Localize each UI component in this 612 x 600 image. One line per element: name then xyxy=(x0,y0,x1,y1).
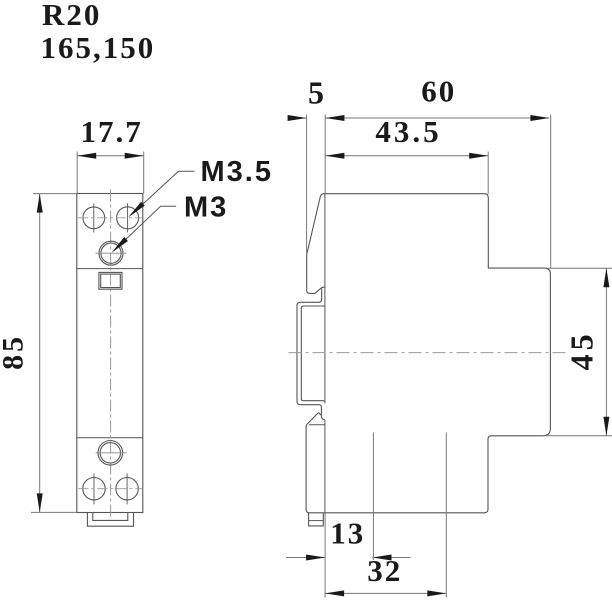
svg-text:60: 60 xyxy=(421,74,456,109)
svg-text:17.7: 17.7 xyxy=(80,114,142,149)
svg-text:13: 13 xyxy=(330,516,365,551)
svg-text:85: 85 xyxy=(0,334,30,370)
svg-text:45: 45 xyxy=(564,330,600,370)
svg-text:M3.5: M3.5 xyxy=(201,156,273,188)
svg-text:32: 32 xyxy=(367,553,402,588)
svg-text:M3: M3 xyxy=(184,192,228,224)
svg-text:165,150: 165,150 xyxy=(41,30,156,65)
svg-text:43.5: 43.5 xyxy=(375,114,441,149)
svg-text:R20: R20 xyxy=(42,0,101,32)
svg-text:5: 5 xyxy=(308,75,326,111)
